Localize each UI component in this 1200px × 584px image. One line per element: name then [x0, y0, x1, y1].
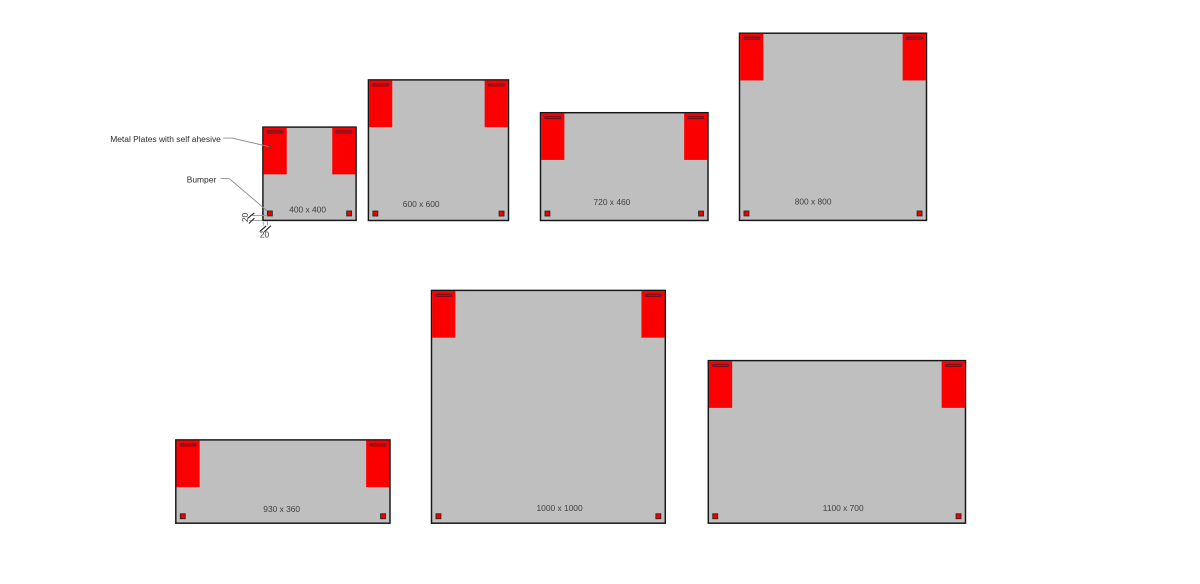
svg-text:Metal Plates with self ahesive: Metal Plates with self ahesive — [110, 134, 221, 144]
svg-text:20: 20 — [240, 213, 250, 223]
svg-text:1100 x 700: 1100 x 700 — [823, 503, 864, 513]
svg-text:800 x 800: 800 x 800 — [795, 197, 832, 207]
svg-text:20: 20 — [260, 230, 270, 240]
svg-text:930 x 360: 930 x 360 — [263, 504, 300, 514]
svg-text:720 x 460: 720 x 460 — [594, 197, 631, 207]
svg-text:400 x 400: 400 x 400 — [289, 204, 326, 214]
svg-text:600 x 600: 600 x 600 — [403, 199, 440, 209]
svg-text:1000 x 1000: 1000 x 1000 — [537, 503, 583, 513]
svg-text:Bumper: Bumper — [187, 174, 217, 184]
